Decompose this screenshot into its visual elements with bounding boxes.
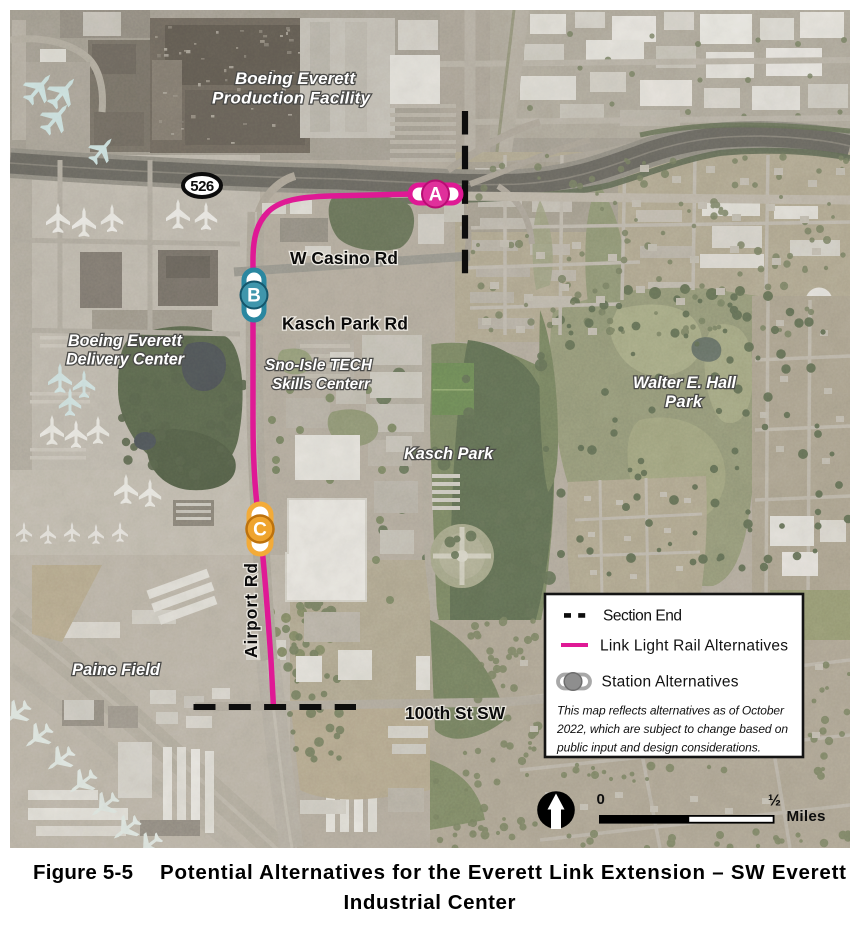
svg-text:W Casino Rd: W Casino Rd (290, 248, 398, 268)
svg-text:Figure 5-5: Figure 5-5 (33, 861, 133, 884)
svg-text:526: 526 (190, 178, 214, 195)
svg-text:Miles: Miles (787, 808, 826, 825)
svg-text:Link Light Rail Alternatives: Link Light Rail Alternatives (600, 638, 788, 655)
svg-text:Sno-Isle TECH: Sno-Isle TECH (265, 357, 373, 374)
svg-text:Airport Rd: Airport Rd (241, 563, 261, 658)
svg-text:Delivery Center: Delivery Center (66, 351, 186, 369)
svg-text:A: A (429, 185, 443, 206)
svg-text:C: C (253, 520, 267, 541)
svg-text:Kasch Park Rd: Kasch Park Rd (282, 314, 408, 334)
svg-text:Boeing Everett: Boeing Everett (68, 332, 183, 350)
svg-text:Section End: Section End (603, 608, 682, 625)
svg-text:Paine Field: Paine Field (72, 661, 161, 679)
svg-text:100th St SW: 100th St SW (405, 703, 506, 723)
svg-text:0: 0 (597, 791, 605, 808)
svg-text:Boeing Everett: Boeing Everett (235, 69, 356, 88)
svg-text:Park: Park (665, 393, 703, 411)
svg-text:This map reflects alternatives: This map reflects alternatives as of Oct… (557, 704, 785, 718)
svg-text:Potential Alternatives for the: Potential Alternatives for the Everett L… (160, 861, 846, 884)
svg-text:2022, which are subject to cha: 2022, which are subject to change based … (556, 722, 788, 736)
svg-text:Industrial Center: Industrial Center (344, 891, 516, 914)
svg-text:Production Facility: Production Facility (212, 89, 372, 108)
svg-text:Station Alternatives: Station Alternatives (602, 674, 739, 691)
svg-text:public input and design consid: public input and design considerations. (556, 741, 761, 755)
svg-text:Walter E. Hall: Walter E. Hall (633, 374, 736, 392)
svg-text:B: B (247, 286, 261, 307)
svg-text:½: ½ (768, 793, 781, 810)
svg-text:Skills Centerr: Skills Centerr (272, 376, 371, 393)
svg-text:Kasch Park: Kasch Park (404, 445, 494, 463)
